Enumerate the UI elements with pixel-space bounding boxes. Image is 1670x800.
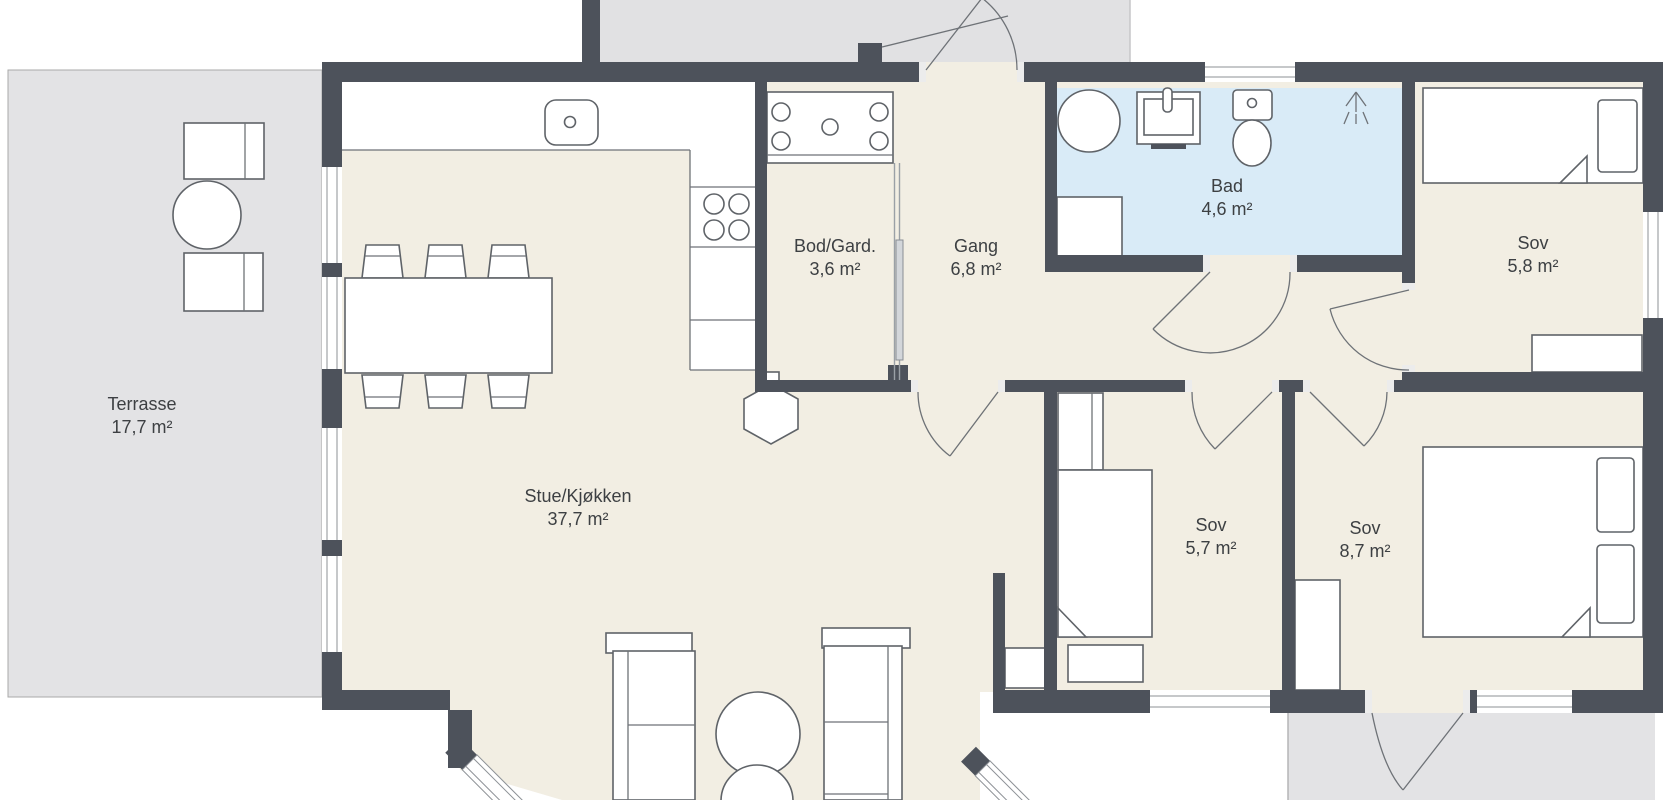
window-right [1643,212,1663,318]
outdoor-chair [184,253,263,311]
sofa-right [822,628,910,800]
window-bottom-sov57 [1150,690,1270,713]
room-area-gang: 6,8 m² [950,259,1001,279]
window-left-2 [322,277,342,369]
bed-single-middle [1058,470,1152,637]
wardrobe-middle [1058,393,1103,470]
room-area-sov-right: 8,7 m² [1339,541,1390,561]
wardrobe-bottom-right [1295,580,1340,690]
room-label-bod: Bod/Gard. [794,236,876,256]
room-label-gang: Gang [954,236,998,256]
room-label-terrasse: Terrasse [107,394,176,414]
outdoor-table [173,181,241,249]
terrace-surface [8,70,322,697]
dresser-top-right [1532,335,1642,372]
bathroom-sink-icon [1137,88,1200,149]
back-terrace-surface [1288,713,1655,800]
oven-icon [767,92,893,163]
coffee-table [716,692,800,800]
room-label-bad: Bad [1211,176,1243,196]
kitchen-sink-icon [545,100,598,145]
sofa-left [606,633,695,800]
bed-double-bottom-right [1423,447,1643,637]
room-label-sov-right: Sov [1349,518,1380,538]
dining-chairs-bottom [362,375,529,408]
room-label-sov-top: Sov [1517,233,1548,253]
floorplan: Terrasse 17,7 m² Stue/Kjøkken 37,7 m² Bo… [0,0,1670,800]
dining-table [345,278,552,373]
dining-chairs-top [362,245,529,278]
room-label-sov-mid: Sov [1195,515,1226,535]
room-area-bad: 4,6 m² [1201,199,1252,219]
window-left-1 [322,167,342,263]
room-area-sov-top: 5,8 m² [1507,256,1558,276]
room-area-sov-mid: 5,7 m² [1185,538,1236,558]
window-bottom-sov87 [1477,690,1572,713]
hall-cabinet [1005,648,1046,688]
toilet-icon [1233,90,1272,166]
outdoor-chair [184,123,264,179]
window-left-3 [322,428,342,540]
room-area-bod: 3,6 m² [809,259,860,279]
window-left-4 [322,556,342,652]
dresser-middle [1068,645,1143,682]
room-area-terrasse: 17,7 m² [111,417,172,437]
bed-single-top-right [1423,88,1643,183]
room-label-stue: Stue/Kjøkken [524,486,631,506]
floorplan-svg: Terrasse 17,7 m² Stue/Kjøkken 37,7 m² Bo… [0,0,1670,800]
room-area-stue: 37,7 m² [547,509,608,529]
window-bath-top [1205,62,1295,82]
